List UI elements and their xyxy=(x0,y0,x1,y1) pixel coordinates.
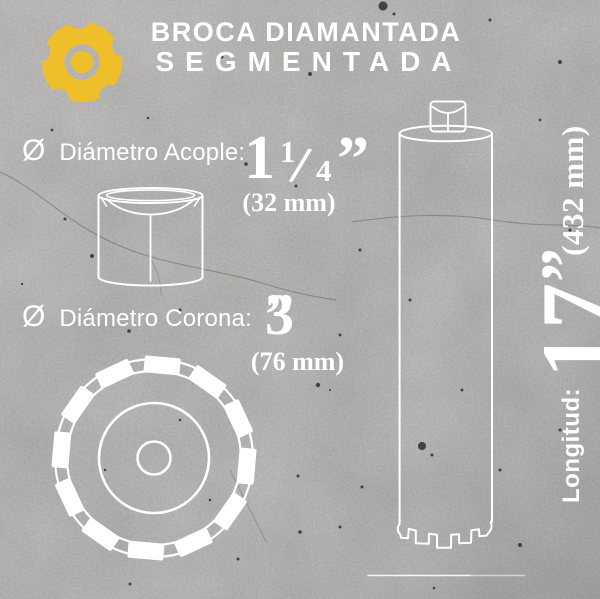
core-drill-bit-illustration xyxy=(398,102,492,548)
acople-adapter-illustration xyxy=(99,188,203,286)
acople-whole-number: 1 xyxy=(244,127,275,189)
corona-spec-row: Ø Diámetro Corona: xyxy=(22,302,252,333)
acople-label: Diámetro Acople: xyxy=(59,139,245,167)
header-title: BROCA DIAMANTADA SEGMENTADA xyxy=(140,18,472,76)
corona-inch-mark: ” xyxy=(265,286,294,344)
longitud-dimension: Longitud:17”(432 mm) xyxy=(525,125,600,503)
diameter-symbol-icon: Ø xyxy=(22,302,45,332)
title-line-1: BROCA DIAMANTADA xyxy=(140,18,472,47)
corona-label: Diámetro Corona: xyxy=(59,305,252,333)
acople-metric-value: (32 mm) xyxy=(228,190,350,216)
acople-value: 1 1 / 4 ” (32 mm) xyxy=(240,127,380,222)
longitud-label: Longitud: xyxy=(558,388,585,503)
longitud-number: 17 xyxy=(523,280,600,378)
crown-segments xyxy=(51,355,256,560)
acople-spec-row: Ø Diámetro Acople: xyxy=(22,136,245,167)
longitud-metric-value: (432 mm) xyxy=(555,125,590,256)
corona-value: 3” (76 mm) xyxy=(260,289,390,384)
corona-crown-illustration xyxy=(51,355,256,560)
infographic-canvas: BROCA DIAMANTADA SEGMENTADA Ø Diámetro A… xyxy=(0,0,600,599)
bit-segmented-teeth xyxy=(398,520,492,548)
title-line-2: SEGMENTADA xyxy=(146,47,472,76)
diameter-symbol-icon: Ø xyxy=(22,136,45,166)
acople-fraction-denominator: 4 xyxy=(316,155,332,186)
corona-metric-value: (76 mm) xyxy=(235,349,360,375)
acople-inch-mark: ” xyxy=(337,127,369,191)
